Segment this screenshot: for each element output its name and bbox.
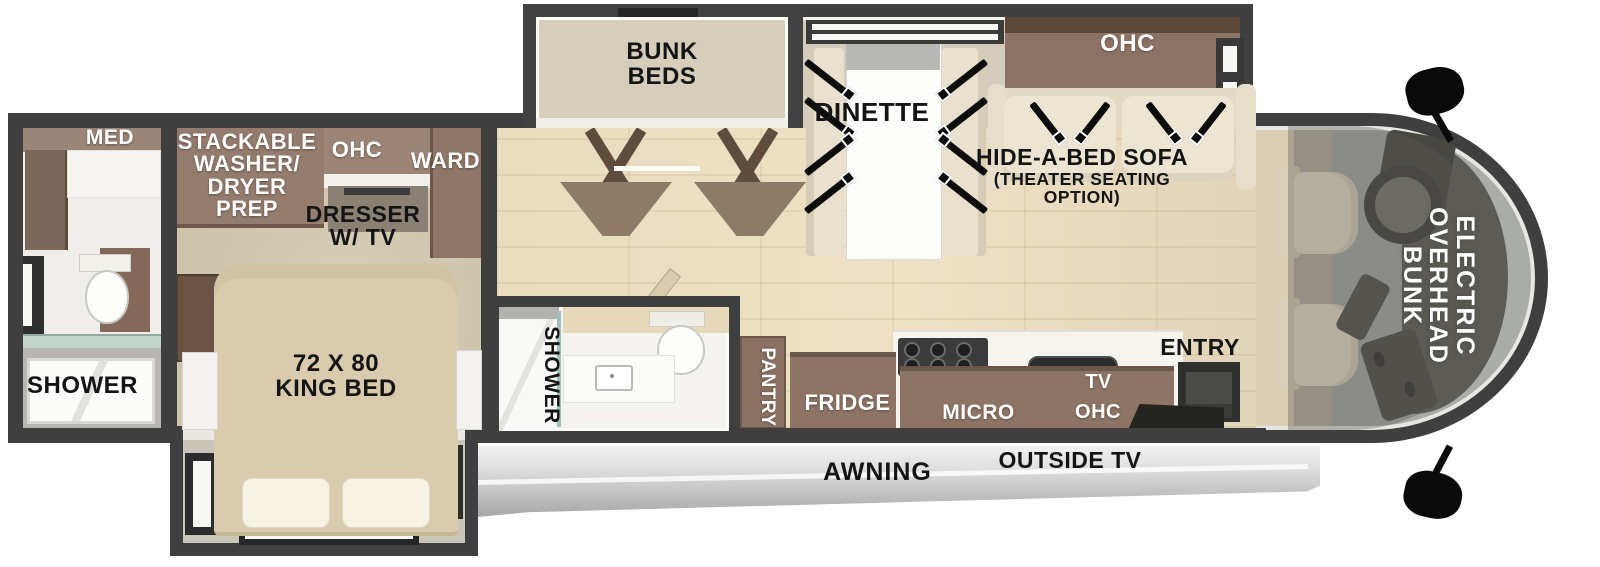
mid-sink [595,365,633,391]
sofa-armrest-right [1236,84,1256,190]
stove-burner [904,342,920,358]
entry-mat [1128,404,1224,430]
outside-tv-label: OUTSIDE TV [985,449,1155,473]
sofa-option-label-2: OPTION) [976,188,1188,206]
wall-bottom-rear [8,428,173,443]
nightstand-left [182,352,218,430]
window-pane [812,34,998,40]
dinette-slide-wall-top [790,4,1253,17]
awning-label: AWNING [790,459,965,485]
dinette-table-edge [846,44,940,70]
nightstand-right [456,350,482,430]
entry-label: ENTRY [1155,336,1245,360]
dresser-label: DRESSER W/ TV [298,203,428,250]
ward-label: WARD [408,150,483,173]
entry-step [1186,372,1232,404]
bunk-slide-latch [618,8,698,17]
bunk-slide-sill [536,118,788,128]
pantry-label: PANTRY [753,334,777,440]
sofa-label: HIDE-A-BED SOFA [976,146,1188,170]
rv-floorplan: ELECTRIC OVERHEAD BUNK [0,0,1600,567]
bed-pillow [342,478,430,528]
sofa-option-label-1: (THEATER SEATING [976,170,1188,188]
rear-bath-cabinet [25,150,68,250]
dresser-tv [344,188,410,195]
dinette-table [846,44,942,260]
wall-rear [8,113,23,443]
mid-bath-box [488,296,740,442]
stove-burner [956,342,972,358]
stove-burner [930,342,946,358]
kitchen-tv-label: TV [1076,372,1121,393]
kitchen-ohc-label: OHC [1062,402,1134,423]
electric-overhead-bunk-label: ELECTRIC OVERHEAD BUNK [1394,176,1478,396]
mid-shower-label: SHOWER [536,315,562,435]
window-pane [193,461,211,527]
bedroom-ohc-label: OHC [322,139,392,162]
mid-sink-drain [610,374,614,378]
king-bed-label: 72 X 80 KING BED [256,352,416,402]
rear-bath-counter [67,150,161,198]
side-mirror-bottom [1400,466,1466,523]
rear-shower-label: SHOWER [25,374,140,399]
window-pane [812,24,998,30]
front-cap: ELECTRIC OVERHEAD BUNK [1252,113,1548,443]
living-ohc-label: OHC [1085,32,1170,57]
micro-label: MICRO [936,402,1021,424]
side-mirror-top [1401,62,1468,121]
window-pane [1223,46,1237,72]
bath-counter-glass [23,334,161,348]
sofa-label-block: HIDE-A-BED SOFA (THEATER SEATING OPTION) [976,146,1188,206]
dinette-window [806,20,1004,44]
bed-pillow [242,478,330,528]
window-pane [245,536,413,539]
med-label: MED [60,127,160,149]
cab-interior: ELECTRIC OVERHEAD BUNK [1252,126,1535,430]
bunk-rail-mark [614,166,700,171]
toilet-bowl [85,270,129,324]
bunk-beds-label: BUNK BEDS [592,40,732,90]
fridge-label: FRIDGE [800,392,895,415]
dinette-label: DINETTE [792,99,952,126]
